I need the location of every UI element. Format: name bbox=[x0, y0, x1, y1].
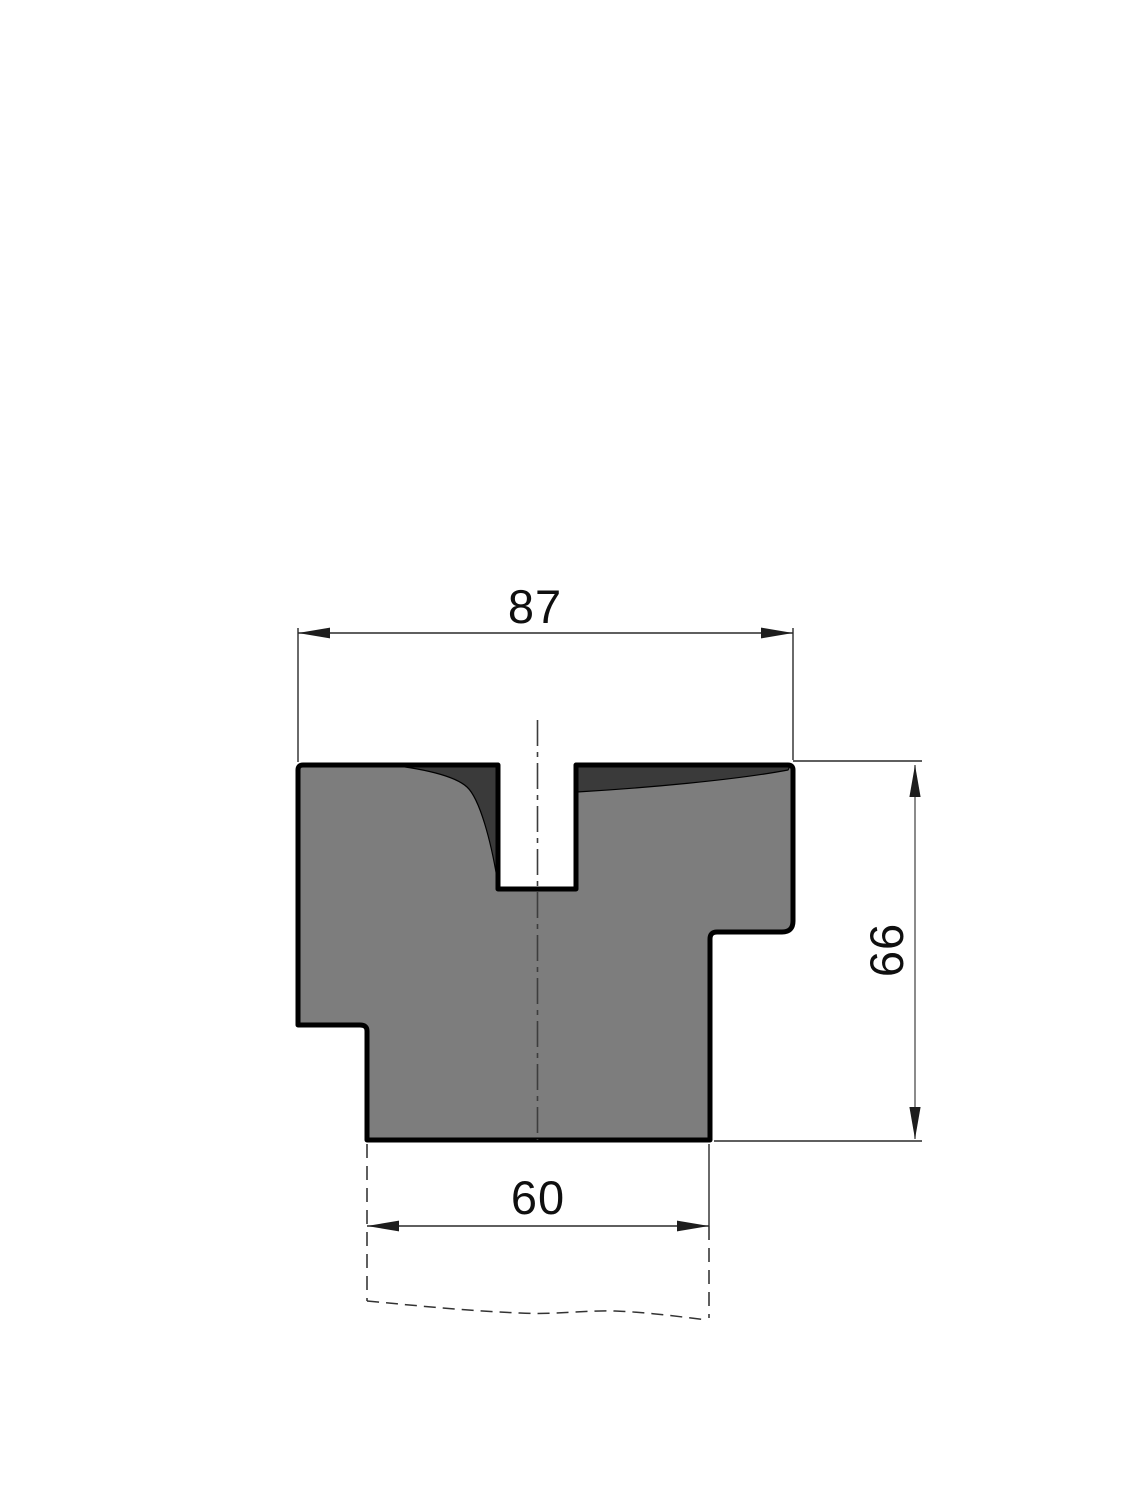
break-line bbox=[367, 1301, 708, 1320]
arrowhead-top bbox=[909, 765, 920, 797]
arrowhead-bottom bbox=[909, 1107, 920, 1139]
dimension-top-width: 87 bbox=[298, 580, 793, 762]
arrowhead-left bbox=[298, 628, 330, 639]
dimension-label-bottom-width: 60 bbox=[511, 1171, 565, 1224]
dimension-label-right-height: 66 bbox=[860, 923, 913, 977]
technical-drawing: 87 66 60 bbox=[0, 0, 1124, 1500]
part-cross-section bbox=[298, 765, 793, 1140]
dimension-label-top-width: 87 bbox=[508, 580, 562, 633]
drawing-canvas: 87 66 60 bbox=[0, 0, 1124, 1500]
dimension-bottom-width: 60 bbox=[367, 1144, 709, 1318]
arrowhead-right bbox=[761, 628, 793, 639]
arrowhead-left bbox=[367, 1221, 399, 1232]
arrowhead-right bbox=[677, 1221, 709, 1232]
